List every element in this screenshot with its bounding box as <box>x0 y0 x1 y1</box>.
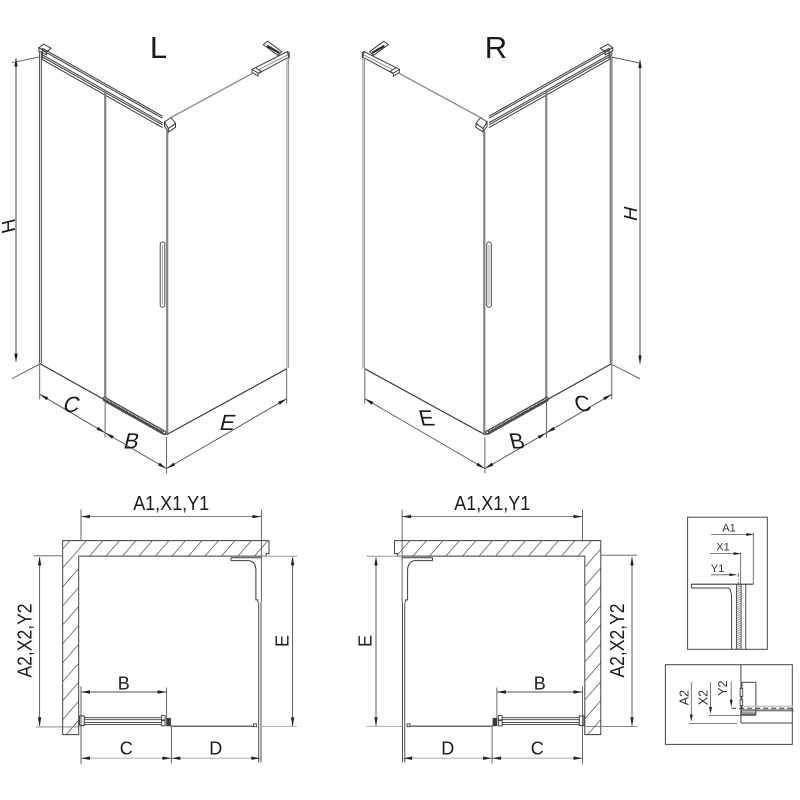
svg-text:R: R <box>485 30 507 65</box>
svg-text:E: E <box>356 635 376 647</box>
svg-text:A2,X2,Y2: A2,X2,Y2 <box>15 604 37 678</box>
svg-text:A1: A1 <box>722 523 735 535</box>
svg-text:X1: X1 <box>716 541 729 553</box>
svg-text:E: E <box>273 635 293 647</box>
svg-text:A2: A2 <box>678 690 692 705</box>
svg-text:C: C <box>120 739 133 759</box>
svg-text:A1,X1,Y1: A1,X1,Y1 <box>133 493 209 515</box>
svg-text:C: C <box>531 739 544 759</box>
svg-text:X2: X2 <box>697 690 711 705</box>
svg-text:Y1: Y1 <box>711 563 724 575</box>
svg-text:D: D <box>209 739 222 759</box>
svg-text:D: D <box>441 739 454 759</box>
svg-text:L: L <box>150 30 167 65</box>
svg-text:Y2: Y2 <box>716 680 730 695</box>
svg-text:B: B <box>118 674 130 694</box>
svg-text:A1,X1,Y1: A1,X1,Y1 <box>454 493 530 515</box>
svg-text:A2,X2,Y2: A2,X2,Y2 <box>607 604 629 678</box>
svg-text:B: B <box>534 674 546 694</box>
